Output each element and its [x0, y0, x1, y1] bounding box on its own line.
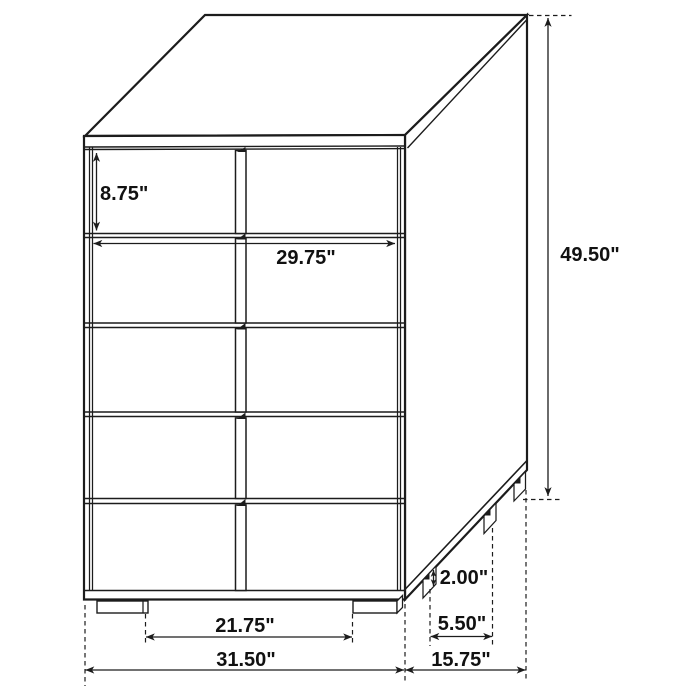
- dim-drawer-width-label: 29.75": [276, 247, 336, 269]
- dim-foot-height-label: 2.00": [440, 567, 488, 589]
- dim-front-feet-spacing: 21.75": [146, 614, 353, 646]
- drawer-handle-4: [236, 413, 247, 499]
- drawer-handle-5: [236, 499, 247, 591]
- dim-overall-height-label: 49.50": [560, 244, 620, 266]
- dim-drawer-height-label: 8.75": [100, 183, 148, 205]
- dim-foot-height: 2.00": [434, 567, 489, 589]
- drawer-handle-1: [236, 147, 247, 234]
- drawer-handle-3: [236, 323, 247, 412]
- dim-overall-depth-label: 15.75": [431, 649, 491, 671]
- front-left-foot: [97, 601, 148, 613]
- chest-dimension-diagram: 8.75" 29.75" 49.50" 2.00" 5.50" 15.75": [0, 0, 700, 700]
- diagram-canvas: 8.75" 29.75" 49.50" 2.00" 5.50" 15.75": [0, 0, 700, 700]
- drawer-handle-2: [236, 234, 247, 324]
- dim-overall-width-label: 31.50": [216, 649, 276, 671]
- dim-front-feet-spacing-label: 21.75": [215, 615, 275, 637]
- drawer-handles: [236, 147, 247, 591]
- chest-drawing: [84, 15, 527, 613]
- dim-side-foot-spacing-label: 5.50": [438, 613, 486, 635]
- dim-overall-height: 49.50": [523, 16, 620, 500]
